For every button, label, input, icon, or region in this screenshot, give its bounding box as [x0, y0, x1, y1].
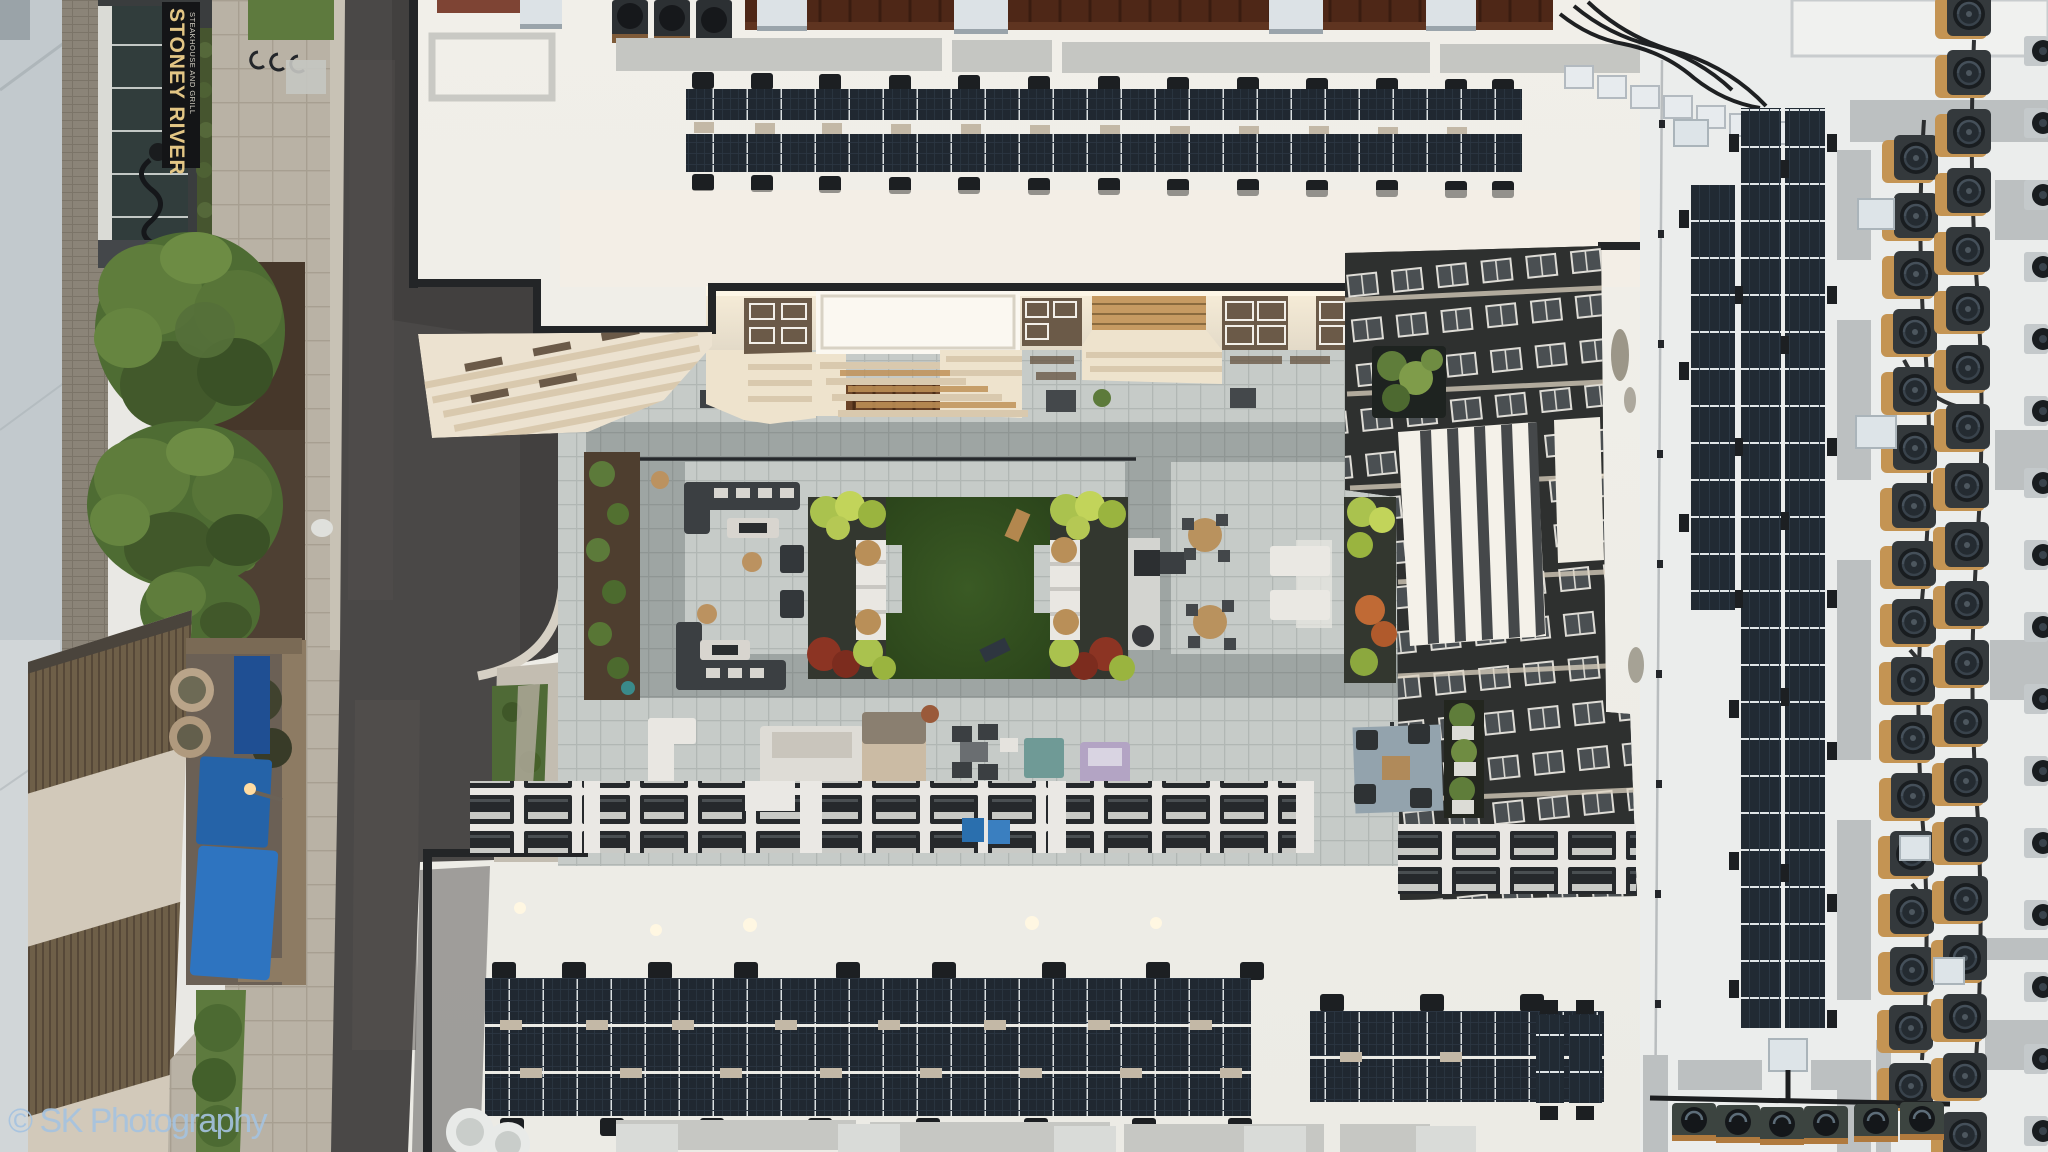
svg-text:STEAKHOUSE AND GRILL: STEAKHOUSE AND GRILL [188, 12, 197, 115]
svg-text:© SK Photography: © SK Photography [8, 1102, 268, 1140]
svg-text:STONEY RIVER: STONEY RIVER [165, 8, 188, 176]
